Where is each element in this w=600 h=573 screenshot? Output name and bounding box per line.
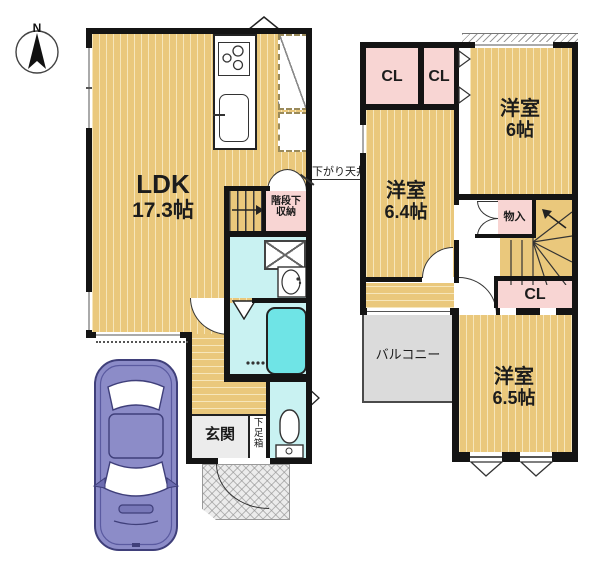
- compass-north-icon: N: [10, 16, 64, 80]
- under-stair-storage-label: 階段下 収納: [266, 196, 306, 218]
- wall: [252, 298, 306, 303]
- bathtub: [266, 307, 307, 375]
- stove-burners-icon: [218, 42, 248, 74]
- storage-closet-label: 物入: [497, 211, 532, 223]
- room-64-area: 6.4帖: [362, 202, 450, 222]
- shoe-cabinet-label: 下足箱: [251, 417, 262, 449]
- shutter-dotted-line: [96, 341, 188, 343]
- window: [360, 125, 366, 153]
- closet-c-label: CL: [498, 286, 572, 304]
- stairs-up-arrow-icon: [230, 202, 264, 218]
- balcony-label: バルコニー: [362, 348, 454, 363]
- closet-b-label: CL: [424, 68, 454, 86]
- wall: [452, 308, 459, 460]
- under-stair-storage-line2: 収納: [266, 207, 306, 218]
- wall: [224, 374, 312, 382]
- bathroom-door-icon: [232, 300, 256, 320]
- room-65-area: 6.5帖: [459, 388, 569, 408]
- refrigerator-space: [278, 112, 308, 152]
- wall: [224, 231, 306, 237]
- wall: [186, 332, 192, 464]
- second-floor-hall: [366, 283, 454, 308]
- room-6-label: 洋室 6帖: [470, 98, 570, 141]
- window-sash-line: [86, 87, 92, 89]
- wall: [266, 382, 270, 464]
- eave-line: [462, 33, 578, 42]
- closet-a-label: CL: [366, 68, 418, 86]
- wall: [306, 28, 312, 464]
- balcony-window: [367, 308, 450, 315]
- casement-window-icon: [520, 461, 553, 477]
- pantry-space: [278, 34, 308, 110]
- closet-door-icon: [458, 50, 471, 68]
- window: [475, 42, 553, 48]
- car-top-view: [92, 357, 180, 553]
- wall: [454, 110, 459, 205]
- room-65-name: 洋室: [459, 366, 569, 388]
- ldk-label: LDK 17.3帖: [110, 170, 216, 223]
- wall: [224, 231, 230, 378]
- room-6-area: 6帖: [470, 120, 570, 140]
- room-6-name: 洋室: [470, 98, 570, 120]
- kitchen-sink: [219, 94, 249, 142]
- wall: [475, 234, 536, 238]
- toilet-fixture: [274, 408, 304, 460]
- room-64-label: 洋室 6.4帖: [362, 180, 450, 223]
- under-stair-storage-line1: 階段下: [266, 196, 306, 207]
- wall: [454, 240, 459, 283]
- closet-c-door-gap: [500, 308, 516, 315]
- wall: [454, 194, 578, 200]
- wall: [360, 104, 459, 110]
- wall: [224, 186, 229, 236]
- compass-n-label: N: [33, 21, 42, 35]
- wall: [86, 28, 312, 34]
- entrance-label: 玄関: [192, 427, 248, 444]
- floor-plan: N: [0, 0, 600, 573]
- room-65-label: 洋室 6.5帖: [459, 366, 569, 409]
- ldk-name: LDK: [110, 170, 216, 199]
- sink-faucet: [213, 114, 225, 116]
- wall: [494, 276, 578, 281]
- window: [96, 332, 180, 338]
- wall: [572, 42, 578, 462]
- ldk-area: 17.3帖: [110, 199, 216, 223]
- wall: [360, 277, 422, 282]
- closet-c-door-gap: [540, 308, 556, 315]
- casement-window-icon: [470, 461, 503, 477]
- wall: [532, 200, 536, 234]
- room-64-name: 洋室: [362, 180, 450, 202]
- bath-faucet-icon: [245, 360, 265, 366]
- vanity-sink: [277, 266, 307, 298]
- lowered-ceiling-note: 下がり天井: [312, 166, 367, 180]
- window: [86, 292, 92, 330]
